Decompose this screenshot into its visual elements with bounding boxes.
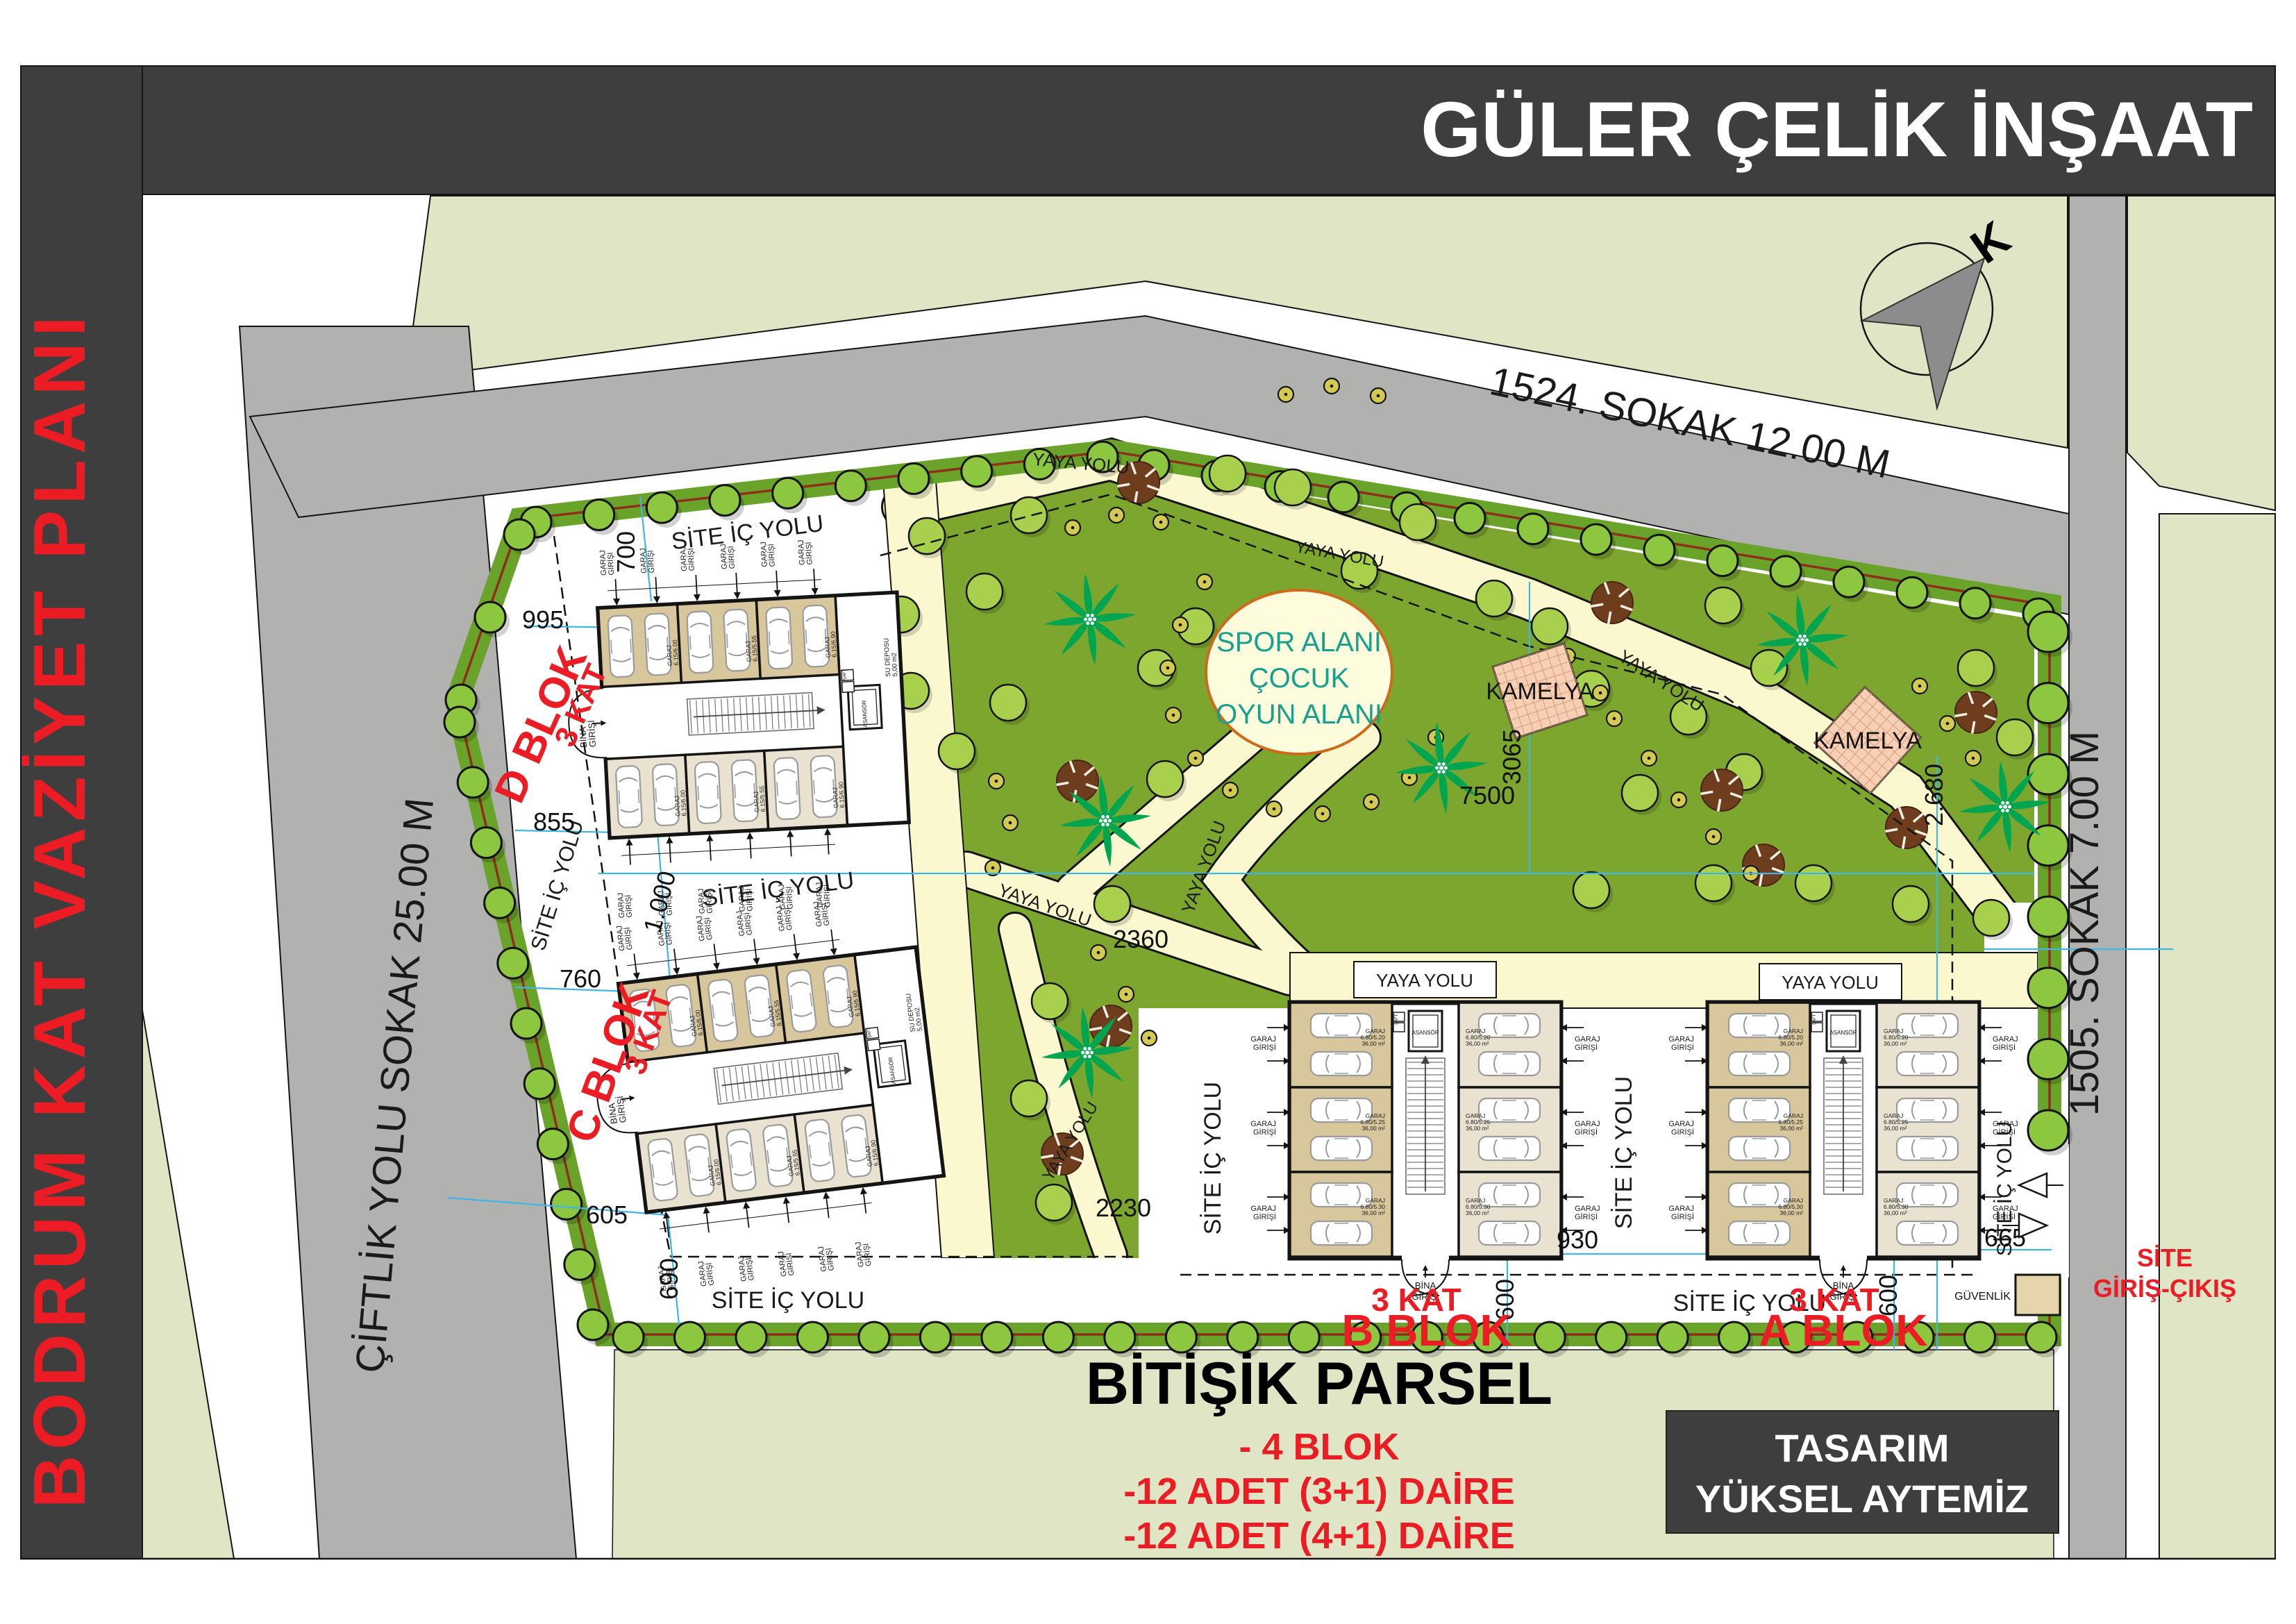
dimension-995: 995 [522,605,564,634]
garaj-girisi-label: GARAJGİRİŞİ [777,1250,796,1277]
street-tree-icon [962,456,992,487]
park-tree-icon [1795,865,1832,901]
street-tree-icon [524,1069,555,1099]
street-tree-icon [674,1322,705,1353]
street-tree-icon [1834,567,1864,597]
car-icon [1479,1052,1540,1075]
street-tree-icon [1657,1322,1688,1353]
dimension-1.000: 1.000 [637,868,681,936]
cocuk-label: ÇOCUK [1249,663,1350,694]
street-tree-icon [578,1309,608,1340]
site-ic-yolu-label: SİTE İÇ YOLU [712,1287,864,1314]
park-tree-icon [909,518,945,554]
garaj-girisi-label: GARAJGİRİŞİ [1668,1205,1694,1221]
car-icon [1311,1221,1372,1245]
street-tree-icon [1897,577,1927,608]
park-tree-icon [1893,886,1929,922]
garaj-girisi-label: GARAJGİRİŞİ [617,892,634,919]
car-icon [1311,1052,1372,1075]
kamelya-label: KAMELYA [1486,678,1594,705]
dimension-2.680: 2.680 [1920,764,1948,826]
car-icon [1897,1221,1958,1245]
car-icon [607,615,635,678]
garaj-girisi-label: GARAJGİRİŞİ [854,1240,873,1267]
street-tree-icon [564,1249,595,1280]
car-icon [1729,1221,1790,1245]
car-icon [1479,1221,1540,1245]
block-b: GARAJ6.80/5.2036,00 m²GARAJ6.80/5.2036,0… [1250,1003,1600,1302]
park-tree-icon [1209,455,1246,492]
park-tree-icon [1622,775,1658,811]
park-tree-icon [990,685,1026,721]
garaj-girisi-label: GARAJGİRİŞİ [1250,1035,1276,1052]
tasarim-label: TASARIM [1775,1426,1950,1470]
park-tree-icon [1011,497,1047,533]
street-tree-icon [920,1322,950,1353]
car-icon [1479,1137,1540,1160]
street-tree-icon [2026,1322,2056,1353]
garaj-girisi-label: GARAJGİRİŞİ [817,1245,836,1272]
garaj-girisi-label: GARAJGİRİŞİ [1993,1035,2018,1052]
garaj-girisi-label: GARAJGİRİŞİ [735,910,754,937]
park-tree-icon [1275,469,1311,505]
street-tree-icon [2028,612,2068,652]
dimension-3065: 3065 [1498,729,1526,785]
designer-name: YÜKSEL AYTEMİZ [1695,1477,2029,1521]
street-tree-icon [551,1189,582,1219]
garaj-girisi-label: GARAJGİRİŞİ [1250,1205,1276,1221]
asansor-label: ASANSÖR [1829,1030,1857,1036]
program-line-2: -12 ADET (3+1) DAİRE [1123,1471,1515,1512]
street-tree-icon [1719,1322,1750,1353]
b-blok-label: B BLOK [1341,1305,1511,1355]
garaj-girisi-label: GARAJGİRİŞİ [697,1259,716,1287]
garaj-girisi-label: GARAJGİRİŞİ [737,1255,756,1282]
park-tree-icon [1011,1080,1047,1116]
garaj-girisi-label: GARAJGİRİŞİ [1575,1120,1600,1137]
street-tree-icon [1166,1322,1196,1353]
site-ic-yolu-label: SİTE İÇ YOLU [1200,1082,1226,1234]
street-right-label: 1505. SOKAK 7.00 M [2062,731,2107,1116]
asansor-label: ASANSÖR [1411,1030,1439,1036]
park-tree-icon [1695,865,1732,901]
dimension-2360: 2360 [1113,925,1168,953]
street-tree-icon [1960,588,1991,619]
program-line-1: - 4 BLOK [1239,1426,1399,1468]
dry-tree-icon [1591,582,1633,624]
car-icon [1729,1137,1790,1160]
dimension-2230: 2230 [1096,1194,1151,1222]
street-tree-icon [898,463,929,494]
block-c: GARAJ6.15/6.0037,00 m2GARAJ6.15/5.5535,0… [577,890,953,1296]
street-tree-icon [646,492,677,523]
saft-label: ŞAFT [1813,1014,1817,1025]
street-tree-icon [504,519,535,550]
street-tree-icon [982,1322,1012,1353]
oyun-alani-label: OYUN ALANI [1216,699,1382,730]
park-tree-icon [1036,1184,1072,1221]
car-icon [773,757,801,820]
street-tree-icon [1328,482,1359,512]
guvenlik-label: GÜVENLİK [1954,1289,2011,1303]
street-tree-icon [773,478,803,508]
park-tree-icon [1094,886,1130,922]
saft-label: ŞAFT [1395,1014,1399,1025]
yaya-yolu-label: YAYA YOLU [1782,972,1879,993]
garaj-girisi-label: GARAJGİRİŞİ [1575,1205,1600,1221]
car-icon [687,611,714,673]
park-tree-icon [1958,650,1994,686]
design-box: TASARIM YÜKSEL AYTEMİZ [1666,1411,2059,1533]
garaj-girisi-label: GARAJGİRİŞİ [812,900,831,927]
street-tree-icon [475,602,505,633]
garaj-girisi-label: GARAJGİRİŞİ [1668,1120,1694,1137]
park-tree-icon [1573,872,1609,908]
street-tree-icon [498,948,528,978]
site-entrance-pocket [2013,1144,2069,1278]
car-icon [1897,1137,1958,1160]
street-tree-icon [1596,1322,1627,1353]
car-icon [1311,1137,1372,1160]
street-tree-icon [485,887,515,918]
car-icon [616,766,643,828]
dimension-930: 930 [1557,1225,1598,1254]
plan-title: BODRUM KAT VAZİYET PLANI [19,310,101,1508]
street-tree-icon [1644,535,1675,565]
bitisik-parsel-label: BİTİŞİK PARSEL [1086,1350,1552,1417]
site-plan-page: GARAJ6.15/6.0037,00 m2GARAJ6.15/5.5535,0… [0,0,2296,1624]
park-tree-icon [1532,608,1568,644]
park-tree-icon [1032,983,1068,1019]
park-tree-icon [1147,761,1183,797]
site-giris-label-2: GİRİŞ-ÇIKIŞ [2093,1274,2236,1303]
dry-tree-icon [1700,769,1743,812]
street-tree-icon [797,1322,828,1353]
site-ic-yolu-label: SİTE İÇ YOLU [527,817,588,953]
garaj-girisi-label: GARAJGİRİŞİ [760,541,777,567]
street-tree-icon [1707,546,1738,576]
block-a: GARAJ6.80/5.2036,00 m²GARAJ6.80/5.2036,0… [1668,1003,2018,1302]
site-ic-yolu-label: SİTE İÇ YOLU [1611,1076,1637,1229]
dimension-690: 690 [655,1258,683,1300]
car-icon [1897,1052,1958,1075]
car-icon [694,762,721,824]
street-tree-icon [613,1322,644,1353]
a-blok-label: A BLOK [1759,1305,1928,1355]
garaj-girisi-label: GARAJGİRİŞİ [639,547,656,574]
street-tree-icon [1105,1322,1135,1353]
street-tree-icon [1043,1322,1073,1353]
street-tree-icon [835,471,866,501]
garaj-girisi-label: GARAJGİRİŞİ [1668,1035,1694,1052]
street-tree-icon [1227,1322,1258,1353]
park-tree-icon [1476,580,1512,617]
dry-tree-icon [1954,692,1997,734]
park-tree-icon [1705,587,1741,623]
street-tree-icon [2028,683,2068,723]
site-plan-canvas: GARAJ6.15/6.0037,00 m2GARAJ6.15/5.5535,0… [0,0,2296,1624]
dimension-700: 700 [612,531,640,573]
park-tree-icon [1997,719,2033,755]
street-tree-icon [1289,1322,1319,1353]
yaya-yolu-label: YAYA YOLU [1376,970,1473,991]
spor-alani-label: SPOR ALANI [1216,627,1382,658]
dimension-7500: 7500 [1459,781,1515,810]
garaj-girisi-label: GARAJGİRİŞİ [615,924,634,951]
street-tree-icon [859,1322,889,1353]
street-tree-icon [444,707,475,737]
street-tree-icon [1518,514,1548,544]
company-title: GÜLER ÇELİK İNŞAAT [1421,86,2253,173]
street-tree-icon [1581,524,1611,555]
street-tree-icon [1455,503,1485,533]
garaj-girisi-label: GARAJGİRİŞİ [695,914,714,941]
block-d: GARAJ6.15/6.0037,00 m2GARAJ6.15/5.5535,0… [560,535,912,920]
garaj-girisi-label: GARAJGİRİŞİ [1575,1035,1600,1052]
guard-booth [2016,1275,2060,1315]
street-tree-icon [710,485,740,516]
dimension-855: 855 [533,807,575,836]
street-tree-icon [736,1322,766,1353]
car-icon [1729,1052,1790,1075]
park-tree-icon [1400,504,1436,540]
saft-label: ŞAFT [843,669,848,680]
street-tree-icon [1965,1322,1995,1353]
park-tree-icon [966,574,1003,610]
street-tree-icon [584,500,614,530]
dimension-605: 605 [586,1200,628,1229]
park-tree-icon [939,733,975,769]
spor-area: SPOR ALANI ÇOCUK OYUN ALANI [1206,590,1392,754]
street-tree-icon [471,828,501,858]
street-tree-icon [1534,1322,1565,1353]
street-tree-icon [1770,556,1801,587]
site-giris-label-1: SİTE [2137,1244,2193,1272]
garaj-girisi-label: GARAJGİRİŞİ [1250,1120,1276,1137]
car-icon [766,607,793,669]
street-tree-icon [511,1008,542,1039]
program-line-3: -12 ADET (4+1) DAİRE [1123,1515,1515,1557]
street-tree-icon [458,767,488,798]
park-tree-icon [1973,900,2009,936]
kamelya-label: KAMELYA [1813,728,1922,754]
dimension-760: 760 [560,964,601,993]
garaj-girisi-label: GARAJGİRİŞİ [797,539,814,565]
garaj-girisi-label: GARAJGİRİŞİ [776,905,794,932]
